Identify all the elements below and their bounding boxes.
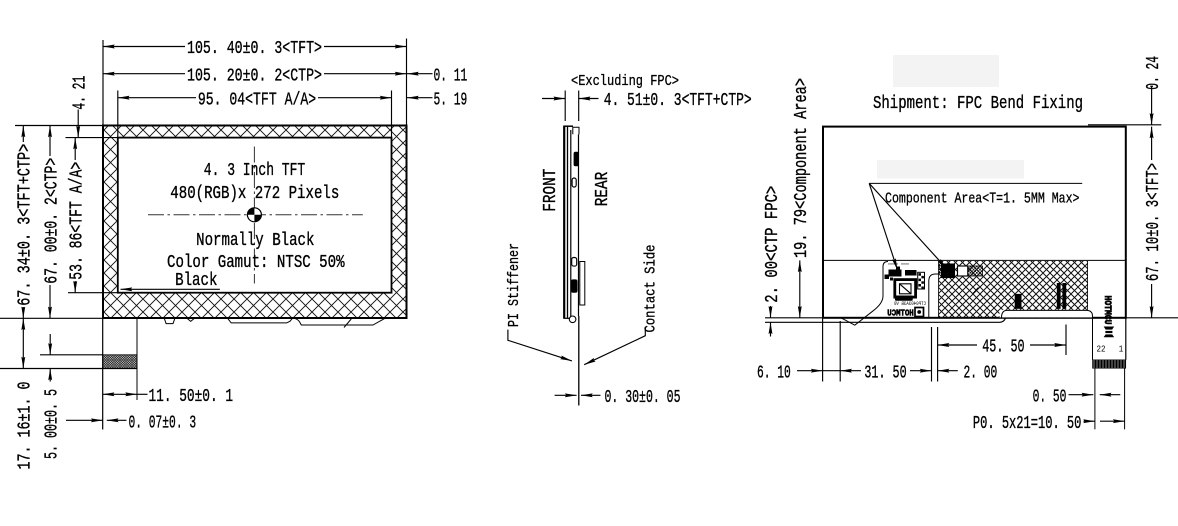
svg-text:480(RGB)x 272 Pixels: 480(RGB)x 272 Pixels bbox=[170, 184, 339, 204]
svg-text:105. 20±0. 2<CTP>: 105. 20±0. 2<CTP> bbox=[187, 66, 322, 86]
svg-text:1: 1 bbox=[1119, 345, 1124, 355]
svg-text:4. 3 Inch TFT: 4. 3 Inch TFT bbox=[204, 161, 306, 181]
svg-text:Component Area<T=1. 5MM Max>: Component Area<T=1. 5MM Max> bbox=[885, 191, 1080, 207]
svg-text:105. 40±0. 3<TFT>: 105. 40±0. 3<TFT> bbox=[187, 39, 322, 59]
svg-text:0. 50: 0. 50 bbox=[1033, 387, 1067, 407]
svg-text:0. 24: 0. 24 bbox=[1144, 56, 1164, 90]
svg-text:0. 11: 0. 11 bbox=[434, 66, 468, 86]
svg-text:HOTMCU: HOTMCU bbox=[1101, 296, 1112, 325]
svg-text:Contact Side: Contact Side bbox=[644, 245, 660, 333]
svg-text:Black: Black bbox=[175, 271, 217, 291]
svg-text:67. 34±0. 3<TFT+CTP>: 67. 34±0. 3<TFT+CTP> bbox=[16, 144, 36, 306]
svg-text:Normally Black: Normally Black bbox=[196, 231, 314, 251]
svg-text:REAR: REAR bbox=[593, 172, 613, 207]
svg-text:4. 51±0. 3<TFT+CTP>: 4. 51±0. 3<TFT+CTP> bbox=[604, 91, 752, 111]
svg-text:6. 10: 6. 10 bbox=[757, 363, 791, 383]
svg-text:<Excluding FPC>: <Excluding FPC> bbox=[571, 74, 679, 90]
svg-text:67. 10±0. 3<TFT>: 67. 10±0. 3<TFT> bbox=[1144, 163, 1164, 281]
svg-text:4. 21: 4. 21 bbox=[71, 76, 91, 110]
svg-text:2. 00<CTP FPC>: 2. 00<CTP FPC> bbox=[763, 186, 783, 303]
svg-text:5. 19: 5. 19 bbox=[434, 90, 468, 110]
svg-text:45. 50: 45. 50 bbox=[982, 338, 1024, 358]
svg-text:P0. 5x21=10. 50: P0. 5x21=10. 50 bbox=[973, 414, 1082, 434]
svg-text:67. 00±0. 2<CTP>: 67. 00±0. 2<CTP> bbox=[42, 158, 62, 284]
svg-text:0. 30±0. 05: 0. 30±0. 05 bbox=[605, 388, 681, 408]
svg-text:Shipment: FPC Bend Fixing: Shipment: FPC Bend Fixing bbox=[873, 94, 1083, 114]
svg-text:0. 07±0. 3: 0. 07±0. 3 bbox=[129, 413, 197, 433]
svg-text:2. 00: 2. 00 bbox=[964, 363, 998, 383]
svg-text:PI Stiffener: PI Stiffener bbox=[507, 243, 523, 327]
svg-text:19. 79<Component Area>: 19. 79<Component Area> bbox=[792, 78, 812, 258]
svg-text:11. 50±0. 1: 11. 50±0. 1 bbox=[149, 387, 234, 407]
svg-text:31. 50: 31. 50 bbox=[864, 363, 906, 383]
svg-text:22: 22 bbox=[1097, 345, 1106, 355]
svg-text:53. 86<TFT A/A>: 53. 86<TFT A/A> bbox=[68, 162, 88, 280]
svg-text:5. 00±0. 5: 5. 00±0. 5 bbox=[43, 389, 63, 459]
svg-text:17. 16±1. 0: 17. 16±1. 0 bbox=[16, 382, 36, 470]
svg-text:HOTMCU: HOTMCU bbox=[887, 308, 914, 319]
svg-text:95. 04<TFT A/A>: 95. 04<TFT A/A> bbox=[198, 90, 316, 110]
svg-text:FRONT: FRONT bbox=[541, 169, 561, 212]
svg-text:CTP0403A3B V0: CTP0403A3B V0 bbox=[894, 301, 926, 307]
